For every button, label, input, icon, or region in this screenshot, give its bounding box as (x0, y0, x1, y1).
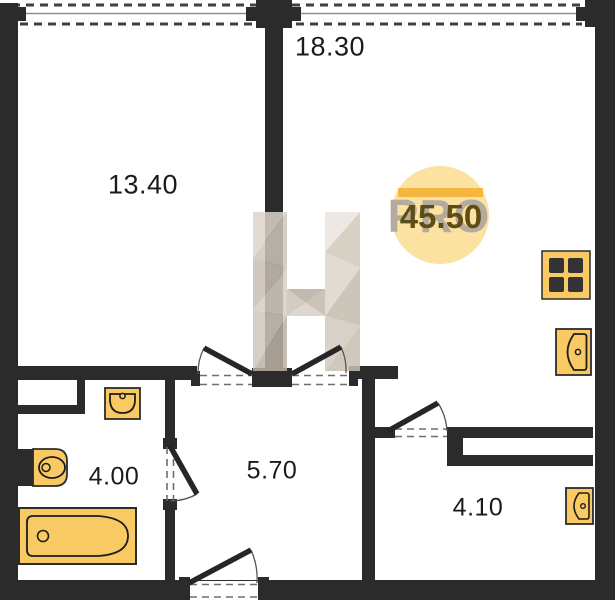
wall-bottom (0, 580, 615, 600)
door-leaf-storage (388, 403, 438, 431)
door-leaf-bedroom (204, 348, 252, 374)
total-area-value: 45.50 (400, 198, 483, 236)
room-area-label-bathroom: 4.00 (89, 463, 140, 492)
bathtub-icon (19, 508, 136, 564)
toilet-icon (17, 449, 67, 486)
wall-top-pier (256, 0, 292, 28)
niche-bottom (18, 405, 85, 414)
shaft-notch-left (18, 565, 36, 579)
wall-left (0, 3, 18, 600)
wall-hall-top-left (0, 366, 197, 380)
wall-bath-right-top (165, 378, 175, 442)
wall-right (595, 0, 615, 600)
window-band (12, 5, 592, 24)
wall-410-connector (447, 427, 463, 466)
door-leaf-entrance (189, 550, 251, 583)
wall-bath-right-bottom (165, 508, 175, 583)
wall-hall-right (362, 378, 375, 583)
wall-410-top (447, 427, 593, 438)
room-area-label-storage: 4.10 (453, 494, 504, 523)
doors (167, 347, 447, 597)
floor-plan: PRO 45.50 13.40 18.30 4.00 5.70 4.10 (0, 0, 615, 600)
door-arc-entrance (251, 550, 257, 583)
room-area-label-bedroom: 13.40 (108, 170, 178, 201)
door-arc-bedroom (198, 348, 204, 374)
room-area-label-hallway: 5.70 (247, 457, 298, 486)
storage-basin-icon (566, 488, 593, 524)
kitchen-sink-icon (556, 329, 591, 375)
floor-plan-drawing (0, 0, 615, 600)
room-area-label-living: 18.30 (295, 32, 365, 63)
watermark-h-logo (253, 212, 360, 371)
shaft-notch-right (578, 564, 593, 578)
wall-right-top-cap (585, 0, 615, 27)
entrance-opening (190, 581, 258, 600)
wash-basin-icon (105, 388, 140, 419)
wall-410-inner (463, 455, 593, 466)
door-arc-storage (438, 403, 447, 431)
stove-icon (542, 251, 590, 299)
